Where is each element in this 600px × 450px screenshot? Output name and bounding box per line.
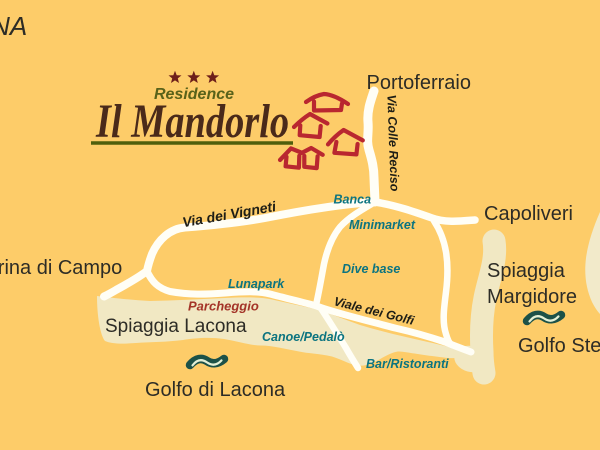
svg-text:Golfo di Lacona: Golfo di Lacona	[145, 379, 286, 401]
svg-text:Banca: Banca	[334, 193, 372, 207]
svg-text:Canoe/Pedalò: Canoe/Pedalò	[262, 330, 345, 344]
svg-text:Margidore: Margidore	[487, 286, 577, 308]
svg-text:Marina di Campo: Marina di Campo	[0, 257, 122, 279]
svg-text:Spiaggia Lacona: Spiaggia Lacona	[105, 316, 247, 337]
svg-text:Lunapark: Lunapark	[228, 277, 285, 291]
svg-text:Portoferraio: Portoferraio	[367, 72, 472, 94]
svg-text:Bar/Ristoranti: Bar/Ristoranti	[366, 357, 449, 371]
svg-text:Dive base: Dive base	[342, 262, 400, 276]
svg-text:Via Colle Reciso: Via Colle Reciso	[384, 94, 401, 192]
svg-text:Parcheggio: Parcheggio	[188, 299, 259, 314]
svg-text:Spiaggia: Spiaggia	[487, 260, 566, 282]
svg-text:MARCIANA: MARCIANA	[0, 11, 27, 41]
svg-text:Golfo Stella: Golfo Stella	[518, 335, 600, 357]
svg-text:Capoliveri: Capoliveri	[484, 203, 573, 225]
svg-text:Il Mandorlo: Il Mandorlo	[95, 95, 289, 148]
svg-text:Minimarket: Minimarket	[349, 218, 416, 232]
